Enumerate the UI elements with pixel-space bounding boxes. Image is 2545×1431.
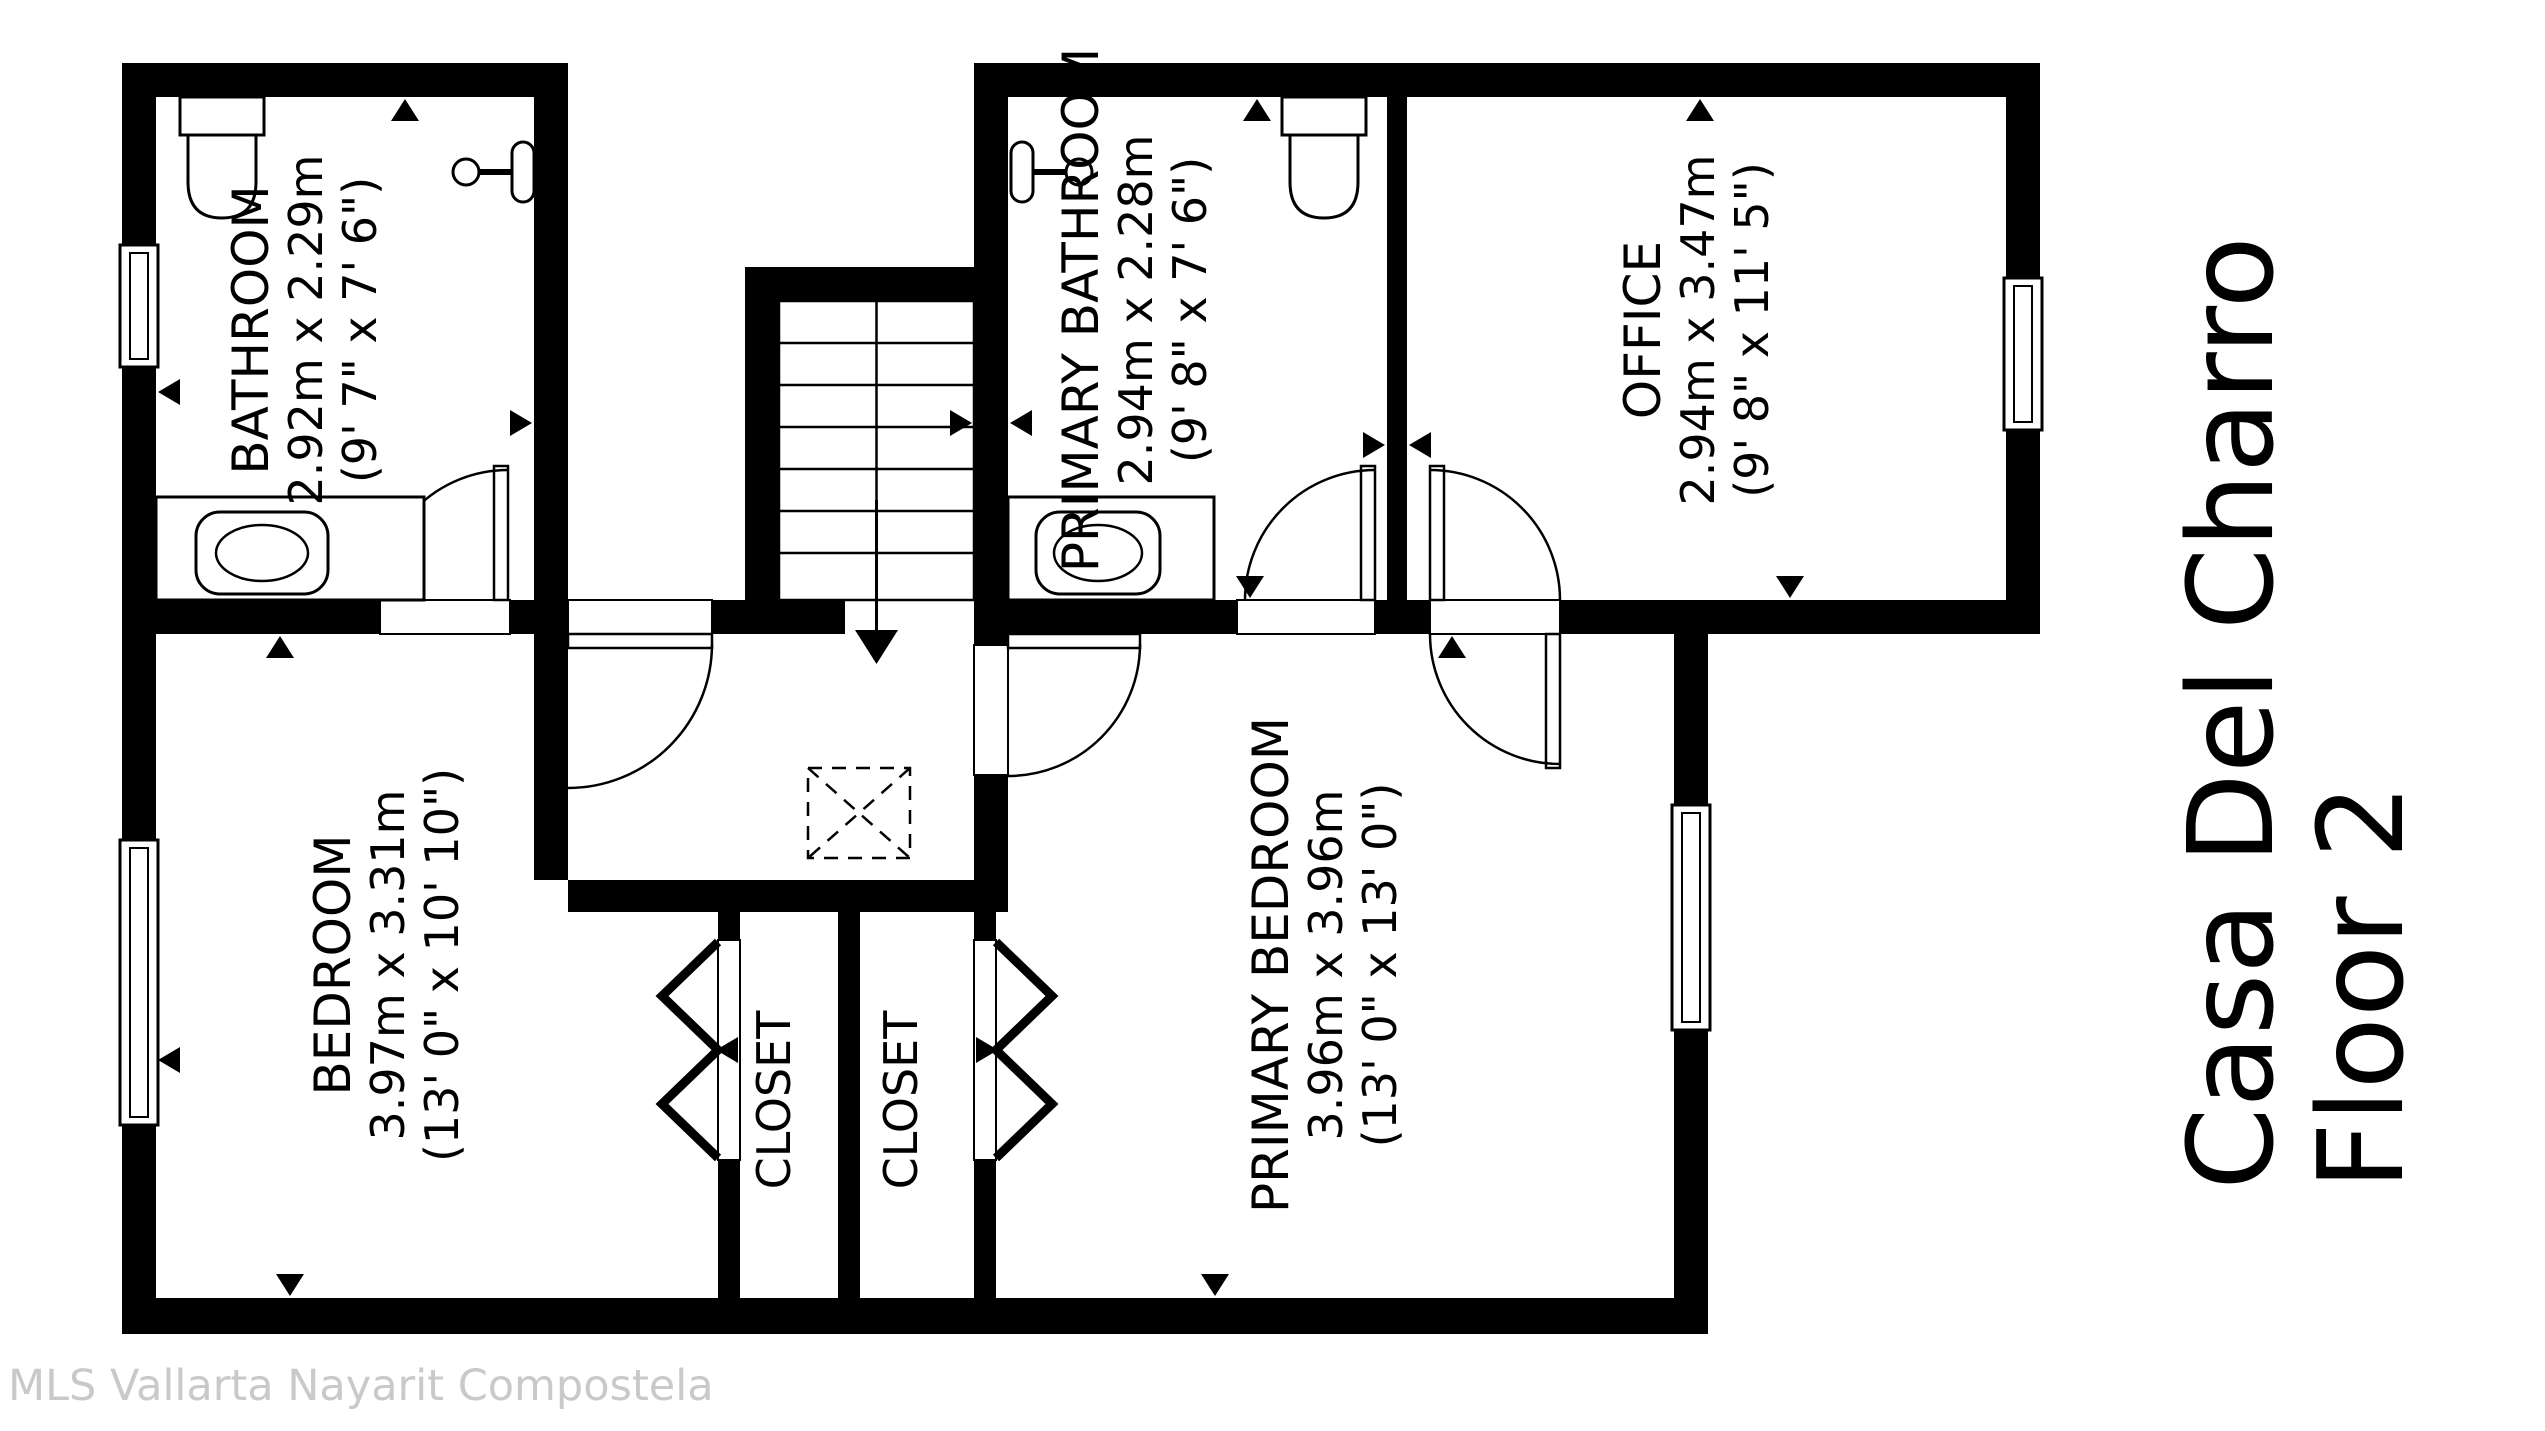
dim-arrow-down <box>1201 1274 1229 1296</box>
bedroom-dim-imperial: (13' 0" x 10' 10") <box>415 768 469 1162</box>
closet-left-label: CLOSET <box>747 1010 801 1190</box>
dim-arrow-up <box>391 99 419 121</box>
dim-arrow-up <box>1686 99 1714 121</box>
window-bedroom <box>120 840 158 1125</box>
wall-pbath-bottom-left <box>974 600 1237 634</box>
bedroom-label: BEDROOM <box>304 835 362 1096</box>
wall-hall-pbedroom-divider <box>974 775 1008 880</box>
bedroom-dim-metric: 3.97m x 3.31m <box>361 790 415 1141</box>
wall-office-bottom <box>1560 600 2040 634</box>
wall-closet-west-bottom <box>718 1160 740 1298</box>
sink-vanity-primary-bathroom <box>1008 497 1214 600</box>
dim-arrow-left <box>1409 432 1431 458</box>
window-office <box>2004 278 2042 430</box>
closet-right-label: CLOSET <box>874 1010 928 1190</box>
door-primary-bathroom <box>1237 466 1375 634</box>
office-dim-metric: 2.94m x 3.47m <box>1671 155 1725 506</box>
wall-closet-divider <box>838 912 860 1298</box>
wall-exterior-top-right <box>974 63 2040 97</box>
dim-arrow-down <box>1776 576 1804 598</box>
window-primary-bedroom <box>1672 805 1710 1030</box>
plan-title-line1: Casa Del Charro <box>2162 236 2300 1190</box>
primary-bathroom-dim-metric: 2.94m x 2.28m <box>1109 135 1163 486</box>
shower-head-bathroom <box>453 142 534 202</box>
office-dim-imperial: (9' 8" x 11' 5") <box>1725 162 1779 498</box>
sink-vanity-bathroom <box>156 497 424 600</box>
wall-bathroom-right <box>534 63 568 880</box>
door-hall-primary-bedroom <box>974 634 1140 776</box>
wall-pbath-left-upper <box>974 63 1008 645</box>
floorplan-canvas: BATHROOM 2.92m x 2.29m (9' 7" x 7' 6") P… <box>0 0 2545 1431</box>
window-bathroom <box>120 245 158 367</box>
hall-shaft-dashed-box <box>808 768 910 858</box>
toilet-primary-bathroom <box>1282 97 1366 218</box>
bathroom-dim-metric: 2.92m x 2.29m <box>279 155 333 506</box>
primary-bathroom-dim-imperial: (9' 8" x 7' 6") <box>1163 157 1217 463</box>
watermark-text: MLS Vallarta Nayarit Compostela <box>8 1361 714 1411</box>
dim-arrow-up <box>1438 636 1466 658</box>
wall-closet-east-top <box>974 912 996 940</box>
dim-arrow-right <box>1363 432 1385 458</box>
primary-bedroom-label: PRIMARY BEDROOM <box>1242 717 1300 1213</box>
dim-arrow-right <box>510 410 532 436</box>
stair-down-arrow <box>855 630 898 664</box>
wall-bathroom-bottom-right <box>510 600 568 634</box>
dim-arrow-up <box>1243 99 1271 121</box>
dim-arrow-left <box>1010 410 1032 436</box>
wall-hall-bottom <box>568 880 1008 912</box>
dim-arrow-down <box>276 1274 304 1296</box>
dim-arrow-down <box>1236 576 1264 598</box>
dim-arrow-left <box>158 1047 180 1073</box>
wall-bathroom-bottom-left <box>122 600 380 634</box>
plan-title: Casa Del Charro Floor 2 <box>2162 236 2430 1190</box>
wall-hall-top <box>712 600 845 634</box>
primary-bedroom-dim-imperial: (13' 0" x 13' 0") <box>1353 783 1407 1148</box>
dim-arrow-right <box>950 410 972 436</box>
office-label: OFFICE <box>1614 241 1672 419</box>
dim-arrow-left <box>158 379 180 405</box>
plan-title-line2: Floor 2 <box>2292 784 2430 1190</box>
wall-exterior-bottom <box>122 1298 1708 1334</box>
door-office <box>1430 466 1560 768</box>
bathroom-dim-imperial: (9' 7" x 7' 6") <box>333 177 387 483</box>
wall-stair-top <box>745 267 1008 301</box>
wall-pbath-office-divider <box>1387 97 1407 634</box>
wall-stair-left <box>745 267 779 600</box>
primary-bathroom-label: PRIMARY BATHROOM <box>1052 48 1110 572</box>
floorplan-page: BATHROOM 2.92m x 2.29m (9' 7" x 7' 6") P… <box>0 0 2545 1431</box>
primary-bedroom-dim-metric: 3.96m x 3.96m <box>1299 790 1353 1141</box>
wall-closet-east-bottom <box>974 1160 996 1298</box>
bathroom-label: BATHROOM <box>222 185 280 474</box>
wall-closet-west-top <box>718 912 740 940</box>
dim-arrow-up <box>266 636 294 658</box>
door-bedroom <box>568 600 712 788</box>
wall-exterior-top-bathroom <box>122 63 568 97</box>
